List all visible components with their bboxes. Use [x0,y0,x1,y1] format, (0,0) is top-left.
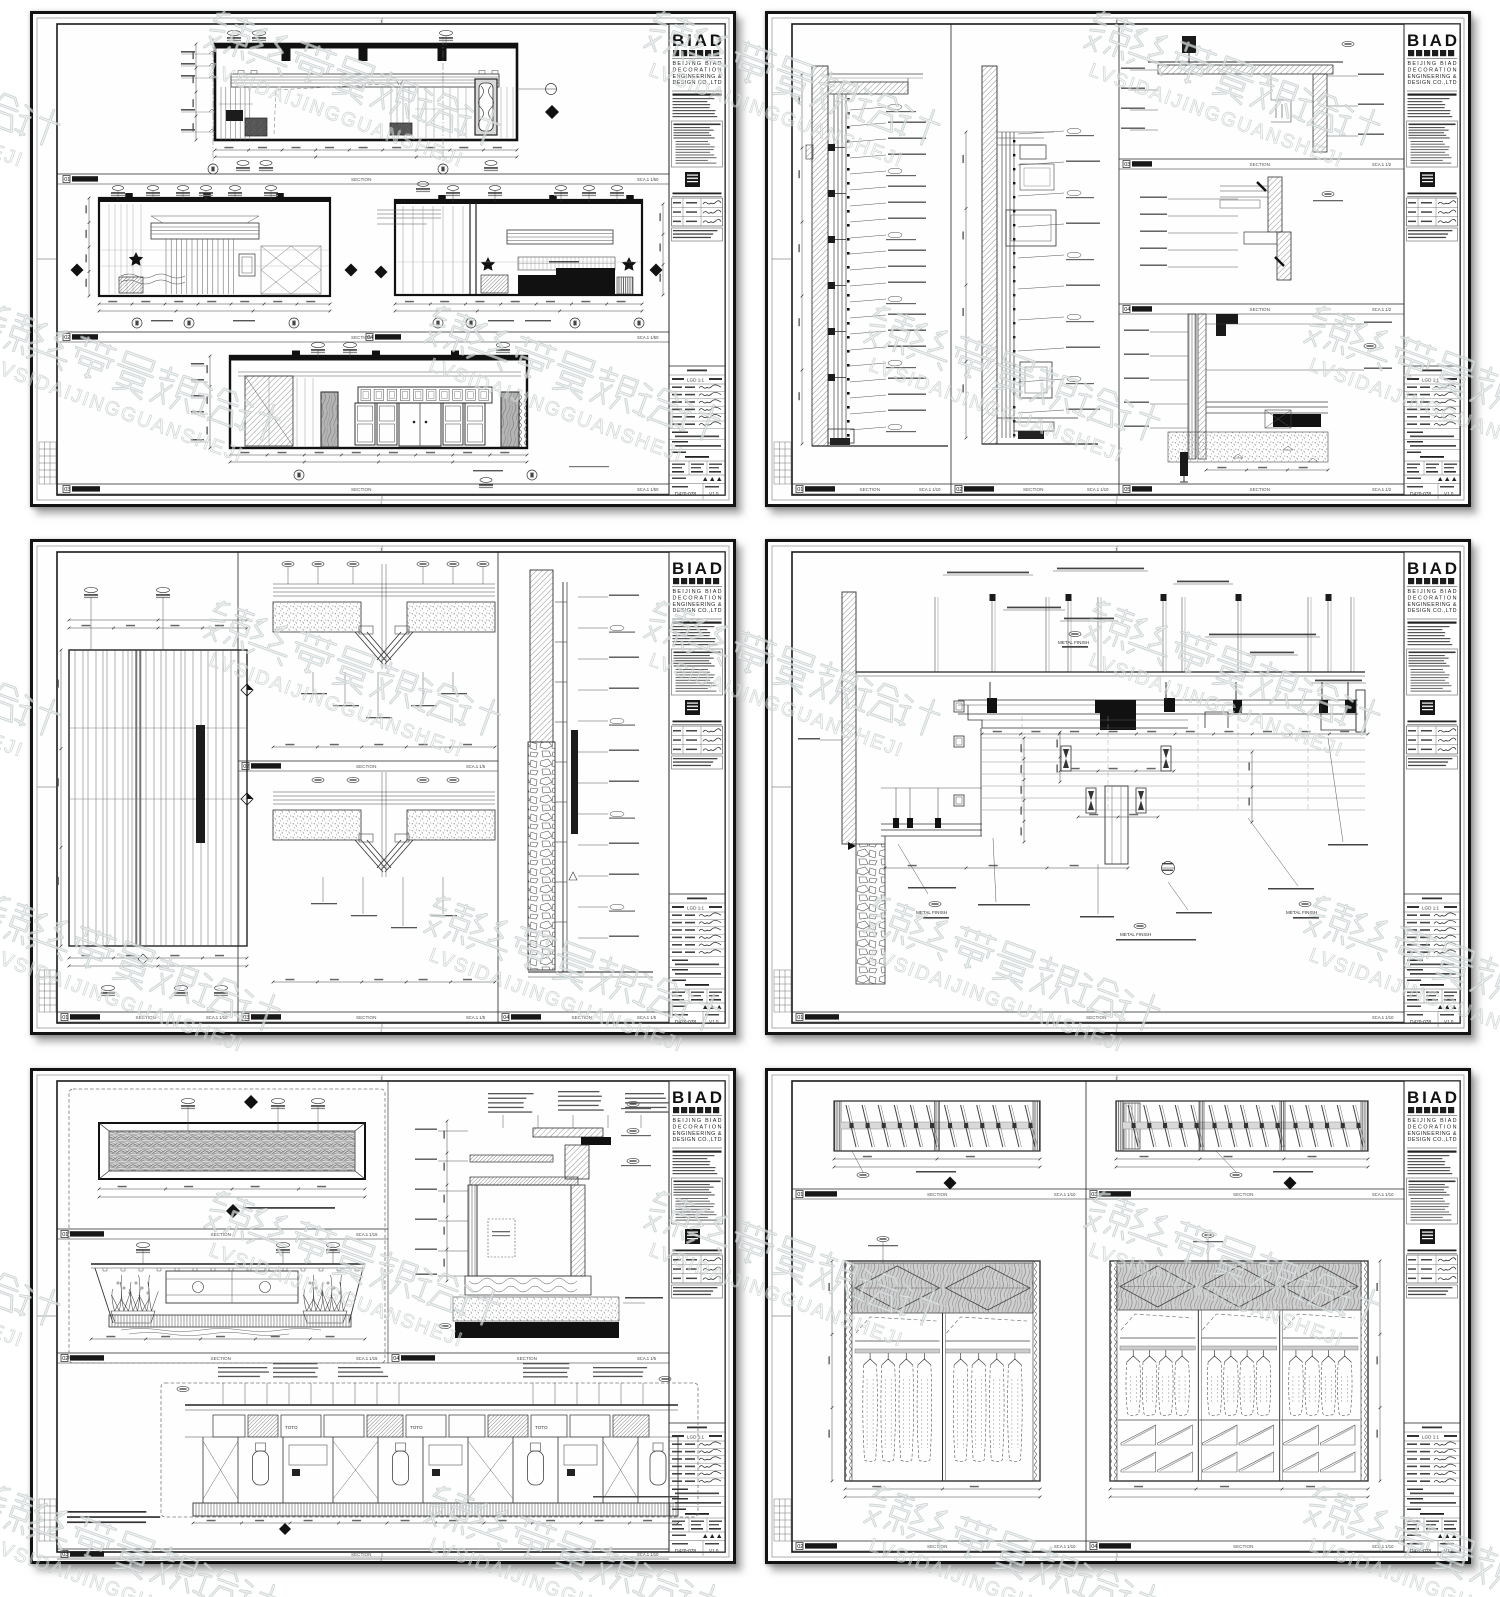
svg-text:SECTION: SECTION [927,1544,947,1549]
svg-text:SECTION: SECTION [1250,487,1270,492]
svg-text:BEIJING BIAD: BEIJING BIAD [1408,1118,1457,1124]
svg-text:SCA.1 1/5: SCA.1 1/5 [637,1015,657,1020]
svg-text:LGD 1:1: LGD 1:1 [1422,1435,1440,1440]
svg-text:1: 1 [1115,1076,1118,1081]
svg-text:METAL FINISH: METAL FINISH [1286,910,1317,915]
svg-text:DESIGN CO.,LTD: DESIGN CO.,LTD [1408,1137,1457,1143]
svg-text:1: 1 [380,1076,383,1081]
svg-text:SCA.1 1/10: SCA.1 1/10 [1372,1015,1394,1020]
svg-text:SECTION: SECTION [927,1192,947,1197]
svg-text:ENGINEERING &: ENGINEERING & [673,1131,722,1137]
svg-text:01: 01 [62,1015,68,1021]
svg-text:04: 04 [393,1356,399,1362]
svg-text:SECTION: SECTION [1086,1015,1106,1020]
svg-text:D420-078: D420-078 [675,1548,696,1554]
svg-text:BEIJING BIAD: BEIJING BIAD [673,61,722,67]
svg-text:V1.0: V1.0 [1444,1548,1454,1553]
svg-text:BEIJING BIAD: BEIJING BIAD [1408,589,1457,595]
svg-text:SECTION: SECTION [860,487,880,492]
svg-text:04: 04 [503,1015,509,1021]
svg-text:SCA.1 1/2: SCA.1 1/2 [1372,162,1392,167]
svg-text:SECTION: SECTION [351,335,371,340]
svg-text:DECORATION: DECORATION [673,595,722,601]
svg-text:SECTION: SECTION [356,1015,376,1020]
svg-text:DECORATION: DECORATION [673,67,722,73]
svg-text:TOTO: TOTO [410,1425,423,1430]
svg-text:SCA.1 1/50: SCA.1 1/50 [637,177,659,182]
svg-text:01: 01 [62,1232,68,1238]
svg-text:01: 01 [797,1192,803,1198]
svg-text:BIAD: BIAD [1407,1088,1457,1107]
svg-text:BIAD: BIAD [1407,31,1457,50]
svg-text:SECTION: SECTION [136,1015,156,1020]
svg-text:1: 1 [1115,547,1118,552]
svg-text:SECTION: SECTION [1023,487,1043,492]
svg-text:ENGINEERING &: ENGINEERING & [673,602,722,608]
svg-text:DECORATION: DECORATION [1408,1124,1457,1130]
svg-text:DESIGN CO.,LTD: DESIGN CO.,LTD [673,1137,722,1143]
svg-text:D420-078: D420-078 [1410,1548,1431,1554]
svg-text:SECTION: SECTION [572,1015,592,1020]
svg-text:LGD 1:1: LGD 1:1 [687,906,705,911]
svg-text:LVSIDAIJINGGUANSHEJI: LVSIDAIJINGGUANSHEJI [0,59,27,172]
svg-text:D420-078: D420-078 [675,1019,696,1025]
svg-text:04: 04 [1124,307,1130,313]
svg-text:BIAD: BIAD [672,31,722,50]
svg-text:LVSIDAIJINGGUANSHEJI: LVSIDAIJINGGUANSHEJI [0,1239,27,1352]
svg-text:DECORATION: DECORATION [673,1124,722,1130]
svg-text:SECTION: SECTION [1250,307,1270,312]
svg-text:BEIJING BIAD: BEIJING BIAD [673,1118,722,1124]
svg-text:SECTION: SECTION [1233,1192,1253,1197]
svg-text:BEIJING BIAD: BEIJING BIAD [673,589,722,595]
svg-text:DESIGN CO.,LTD: DESIGN CO.,LTD [1408,608,1457,614]
svg-text:METAL FINISH: METAL FINISH [916,910,947,915]
svg-text:SCA.1 1/10: SCA.1 1/10 [919,487,941,492]
svg-text:LGD 1:1: LGD 1:1 [1422,906,1440,911]
svg-text:V1.0: V1.0 [1444,491,1454,496]
svg-text:SCA.1 1/50: SCA.1 1/50 [637,487,659,492]
svg-text:02: 02 [62,1356,68,1362]
svg-text:ENGINEERING &: ENGINEERING & [1408,602,1457,608]
svg-text:ENGINEERING &: ENGINEERING & [1408,1131,1457,1137]
svg-text:02: 02 [64,335,70,341]
svg-text:SECTION: SECTION [1233,1544,1253,1549]
svg-text:BIAD: BIAD [672,559,722,578]
svg-text:SCA.1 1/10: SCA.1 1/10 [1372,1544,1394,1549]
svg-text:01: 01 [797,1015,803,1021]
svg-text:METAL FINISH: METAL FINISH [1120,932,1151,937]
svg-text:V1.0: V1.0 [1444,1019,1454,1024]
svg-text:05: 05 [1124,487,1130,493]
svg-text:SCA.1 1/10: SCA.1 1/10 [1087,487,1109,492]
svg-text:04: 04 [1091,1544,1097,1550]
svg-text:V1.0: V1.0 [709,1019,719,1024]
svg-text:SCA.1 1/15: SCA.1 1/15 [356,1232,378,1237]
svg-text:DESIGN CO.,LTD: DESIGN CO.,LTD [673,80,722,86]
svg-text:SCA.1 1/5: SCA.1 1/5 [637,1356,657,1361]
svg-text:SECTION: SECTION [211,1356,231,1361]
svg-text:LGD 1:1: LGD 1:1 [1422,378,1440,383]
svg-text:SCA.1 1/10: SCA.1 1/10 [206,1015,228,1020]
svg-text:DESIGN CO.,LTD: DESIGN CO.,LTD [1408,80,1457,86]
svg-text:02: 02 [797,1544,803,1550]
svg-text:SECTION: SECTION [1250,162,1270,167]
svg-text:SCA.1 1/2: SCA.1 1/2 [1372,487,1392,492]
svg-text:LGD 1:1: LGD 1:1 [687,378,705,383]
svg-text:DECORATION: DECORATION [1408,67,1457,73]
svg-text:V1.0: V1.0 [709,1548,719,1553]
svg-text:03: 03 [64,487,70,493]
svg-text:D420-078: D420-078 [1410,1019,1431,1025]
svg-text:SCA.1 1/10: SCA.1 1/10 [637,1552,659,1557]
svg-text:D420-078: D420-078 [675,491,696,497]
svg-text:SECTION: SECTION [211,1232,231,1237]
svg-text:SCA.1 1/5: SCA.1 1/5 [466,764,486,769]
svg-text:1: 1 [380,547,383,552]
svg-text:BIAD: BIAD [672,1088,722,1107]
svg-text:SECTION: SECTION [351,177,371,182]
svg-text:SECTION: SECTION [356,764,376,769]
svg-text:DESIGN CO.,LTD: DESIGN CO.,LTD [673,608,722,614]
svg-text:ENGINEERING &: ENGINEERING & [673,74,722,80]
svg-text:BEIJING BIAD: BEIJING BIAD [1408,61,1457,67]
svg-text:02: 02 [956,487,962,493]
svg-text:METAL FINISH: METAL FINISH [1058,640,1089,645]
svg-text:DECORATION: DECORATION [1408,595,1457,601]
svg-text:BIAD: BIAD [1407,559,1457,578]
svg-text:SECTION: SECTION [351,1552,371,1557]
svg-text:1: 1 [380,19,383,24]
svg-text:01: 01 [797,487,803,493]
svg-text:TOTO: TOTO [285,1425,298,1430]
svg-text:SCA.1 1/10: SCA.1 1/10 [1054,1192,1076,1197]
svg-text:ENGINEERING &: ENGINEERING & [1408,74,1457,80]
svg-text:TOTO: TOTO [535,1425,548,1430]
svg-text:03: 03 [1091,1192,1097,1198]
svg-text:LGD 1:1: LGD 1:1 [687,1435,705,1440]
svg-text:SECTION: SECTION [517,1356,537,1361]
svg-text:SCA.1 1/50: SCA.1 1/50 [637,335,659,340]
svg-text:03: 03 [62,1552,68,1558]
svg-text:SCA.1 1/5: SCA.1 1/5 [466,1015,486,1020]
svg-text:03: 03 [1124,162,1130,168]
svg-text:V1.0: V1.0 [709,491,719,496]
svg-text:LVSIDAIJINGGUANSHEJI: LVSIDAIJINGGUANSHEJI [0,649,27,762]
svg-text:SCA.1 1/10: SCA.1 1/10 [1372,1192,1394,1197]
svg-text:01: 01 [64,177,70,183]
svg-text:SCA.1 1/2: SCA.1 1/2 [1372,307,1392,312]
svg-text:03: 03 [243,1015,249,1021]
svg-text:SECTION: SECTION [351,487,371,492]
svg-text:SCA.1 1/10: SCA.1 1/10 [1054,1544,1076,1549]
svg-text:1: 1 [1115,19,1118,24]
svg-text:SCA.1 1/15: SCA.1 1/15 [356,1356,378,1361]
svg-text:D420-078: D420-078 [1410,491,1431,497]
